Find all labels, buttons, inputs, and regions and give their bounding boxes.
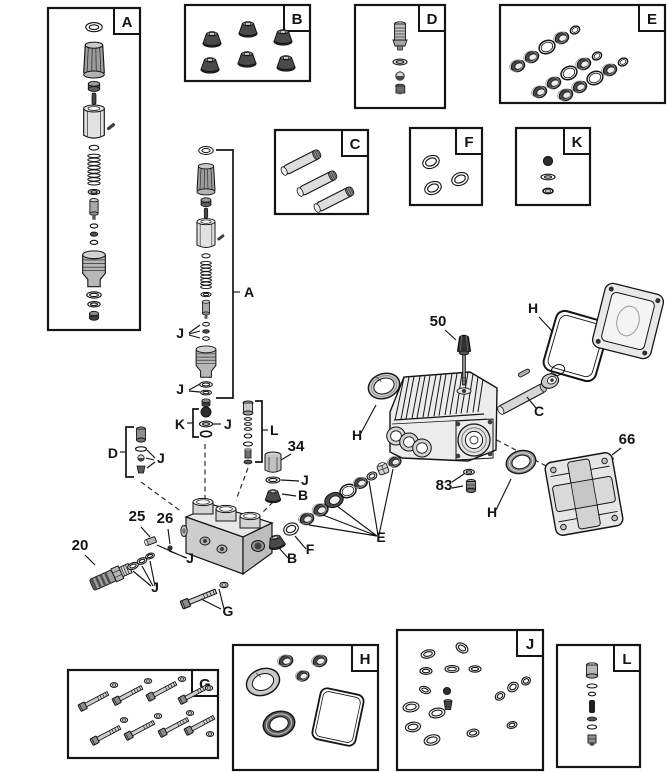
box-label-h: H <box>360 651 371 668</box>
callout-j-manifold: J <box>186 550 194 566</box>
callout-h-rear: H <box>487 504 497 520</box>
callout-g: G <box>223 603 234 619</box>
callout-j-d: J <box>157 450 165 466</box>
bracket-d <box>126 427 134 477</box>
pump-crankcase <box>387 372 497 461</box>
box-label-j: J <box>526 636 534 653</box>
callout-50: 50 <box>430 313 447 330</box>
callout-b-34: B <box>298 487 308 503</box>
callout-d: D <box>108 445 118 461</box>
box-frame-j <box>397 630 543 770</box>
callout-26: 26 <box>157 510 174 527</box>
kit-box-d: D <box>355 5 445 108</box>
kit-box-b: B <box>185 5 310 81</box>
seal-row-e: B F E <box>267 454 403 566</box>
rear-cover-plate <box>591 282 665 361</box>
fitting-83: 83 <box>436 469 476 494</box>
chemical-valve-k-group: K J <box>175 407 232 437</box>
callout-e-row: E <box>376 529 385 545</box>
kit-box-e: E <box>500 5 665 103</box>
kit-box-h: H <box>233 645 378 770</box>
callout-a: A <box>244 284 254 300</box>
bracket-l <box>255 401 262 462</box>
kit-box-f: F <box>410 128 482 205</box>
callout-20: 20 <box>72 537 89 554</box>
kit-box-c: C <box>275 130 368 214</box>
callout-f-row: F <box>306 541 315 557</box>
kit-box-a: A <box>48 8 140 330</box>
svg-text:J: J <box>176 325 184 341</box>
callout-k: K <box>175 416 185 432</box>
box-label-b: B <box>292 11 303 28</box>
cap-34-stack: 34 J B <box>265 438 309 503</box>
callout-h-gasket: H <box>528 300 538 316</box>
callout-25: 25 <box>129 508 146 525</box>
callout-83: 83 <box>436 477 453 494</box>
oil-seal-h-rear: H <box>487 447 539 520</box>
fittings-25-26: 25 26 J <box>129 508 194 566</box>
callout-34: 34 <box>288 438 305 455</box>
callout-j-upper: J <box>176 325 200 341</box>
check-valve-d-group: D J <box>108 427 165 477</box>
box-label-l: L <box>622 651 631 668</box>
bracket-a <box>216 150 233 398</box>
kit-box-l: L <box>557 645 640 767</box>
callout-66: 66 <box>619 431 636 448</box>
kit-box-g: G <box>68 670 218 758</box>
callout-j-34: J <box>301 472 309 488</box>
callout-b-row: B <box>287 550 297 566</box>
box-label-k: K <box>572 134 583 151</box>
unloader-valve-column: A J J <box>176 147 254 407</box>
callout-c: C <box>534 403 544 419</box>
kit-box-j: J <box>397 630 543 770</box>
box-label-e: E <box>647 11 657 28</box>
box-label-f: F <box>464 134 473 151</box>
pump-exploded-diagram: A B D E <box>0 0 668 772</box>
box-label-d: D <box>427 11 438 28</box>
inlet-fitting-20: 20 J <box>72 537 159 595</box>
bearing-cover <box>544 452 624 537</box>
callout-j-inlet: J <box>151 579 159 595</box>
box-label-c: C <box>350 136 361 153</box>
connecting-rod-c: C <box>496 363 566 419</box>
box-frame-h <box>233 645 378 770</box>
kit-box-k: K <box>516 128 590 205</box>
callout-j-k: J <box>224 416 232 432</box>
bracket-k <box>193 409 199 437</box>
box-frame-g <box>68 670 218 758</box>
svg-text:J: J <box>176 381 184 397</box>
exploded-parts-diagram-page: A B D E <box>0 0 668 772</box>
callout-l: L <box>270 422 279 438</box>
manifold <box>181 498 272 574</box>
callout-h-left: H <box>352 427 362 443</box>
manifold-bolt-g: G <box>180 582 233 619</box>
callout-j-lower: J <box>176 381 200 397</box>
box-label-a: A <box>122 14 133 31</box>
